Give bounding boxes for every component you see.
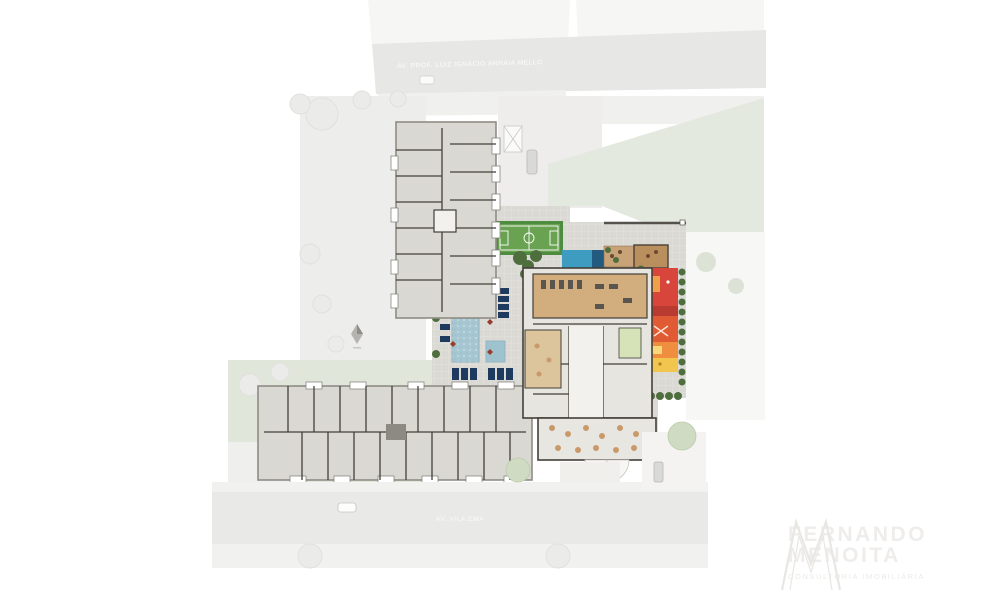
- tower-b-core: [386, 424, 406, 440]
- slope-tree: [728, 278, 744, 294]
- lobby-slab: [538, 418, 656, 460]
- deck-corner-post: [680, 220, 685, 225]
- car-icon-driveway: [654, 462, 663, 482]
- curb-strip: [212, 482, 708, 492]
- car-icon-bottom: [338, 503, 356, 512]
- framed-pergola: [634, 245, 668, 268]
- lounge-room: [525, 330, 561, 388]
- sidewalk-bottom: [212, 544, 708, 568]
- tree-right: [668, 422, 696, 450]
- street-label-bottom: AV. VILA EMA: [436, 516, 484, 523]
- car-icon-top: [527, 150, 537, 174]
- site-plan-svg: AV. PROF. LUIZ IGNÁCIO ANHAIA MELLO: [0, 0, 1000, 600]
- slope-tree: [696, 252, 716, 272]
- bus-stop-marker: [420, 76, 434, 84]
- spa-pool: [562, 250, 605, 268]
- ramp-marker: [504, 126, 522, 152]
- m-monogram-icon: [780, 518, 842, 594]
- site-plan-page: AV. PROF. LUIZ IGNÁCIO ANHAIA MELLO: [0, 0, 1000, 600]
- pergola-deck: [604, 245, 668, 268]
- spa-water: [562, 250, 592, 268]
- amenity-corridor: [569, 326, 603, 418]
- amenity-building: [523, 268, 652, 418]
- play-equipment: [652, 276, 660, 292]
- watermark-logo: FERNANDO MENOITA CONSULTORIA IMOBILIÁRIA: [780, 518, 995, 580]
- tower-b-floorplan: [258, 382, 532, 483]
- tower-a-core: [434, 210, 456, 232]
- tower-a-floorplan: [391, 122, 500, 318]
- tree-center: [506, 458, 530, 482]
- yoga-room: [619, 328, 641, 358]
- spa-deep: [592, 250, 605, 268]
- sports-court: [495, 221, 563, 255]
